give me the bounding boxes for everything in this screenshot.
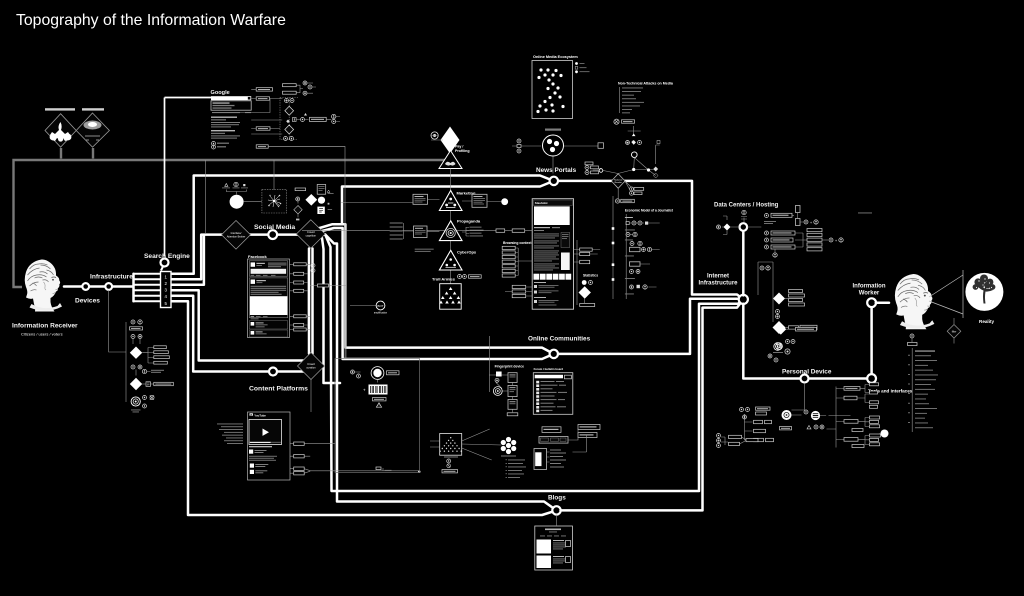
svg-text:Forum / bulletin board: Forum / bulletin board [534, 367, 564, 371]
svg-text:Fingerprint device: Fingerprint device [495, 365, 525, 369]
svg-text:+: + [835, 239, 837, 243]
svg-text:Information: Information [853, 284, 886, 290]
svg-text:Propaganda: Propaganda [457, 219, 481, 224]
svg-text:Pig: Pig [448, 136, 452, 140]
svg-text:Infrastructure: Infrastructure [698, 281, 738, 287]
svg-text:Infrastructure: Infrastructure [90, 274, 133, 281]
svg-text:web: web [134, 352, 139, 355]
svg-text:YouTube: YouTube [254, 413, 266, 417]
svg-text:Non-Technical Attacks on Media: Non-Technical Attacks on Media [618, 82, 674, 86]
svg-text:Information Receiver: Information Receiver [12, 323, 78, 330]
svg-text:Blogs: Blogs [548, 495, 566, 502]
svg-text:Internet: Internet [707, 274, 729, 280]
svg-text:Slashdot: Slashdot [535, 201, 548, 205]
svg-text:Pay /: Pay / [455, 145, 463, 149]
svg-text:Content Platforms: Content Platforms [249, 386, 308, 393]
svg-text:Reality: Reality [979, 319, 995, 324]
svg-text:+: + [363, 388, 366, 393]
svg-text:amplification: amplification [374, 312, 388, 315]
svg-text:Algorithm: Algorithm [231, 200, 242, 204]
svg-text:Worker: Worker [859, 291, 880, 297]
svg-text:Attention Broker: Attention Broker [227, 234, 246, 238]
svg-text:cognition: cognition [306, 234, 317, 238]
svg-text:Topography of the Information: Topography of the Information Warfare [16, 12, 286, 29]
svg-text:Economic Model of a Journalist: Economic Model of a Journalist [625, 209, 674, 213]
svg-text:Google: Google [211, 90, 230, 96]
svg-text:Devices: Devices [75, 298, 100, 305]
svg-text:Statistics: Statistics [583, 274, 598, 278]
svg-text:filter: filter [952, 330, 957, 333]
svg-text:Reader: Reader [615, 181, 622, 184]
svg-text:Interface/: Interface/ [231, 231, 242, 235]
svg-text:Data Centers / Hosting: Data Centers / Hosting [714, 203, 779, 209]
svg-text:BOT: BOT [377, 304, 383, 308]
svg-text:News Portals: News Portals [536, 167, 577, 174]
svg-text:Online Media Ecosystem: Online Media Ecosystem [533, 55, 578, 59]
svg-text:AI: AI [376, 372, 380, 376]
svg-text:Browsing context: Browsing context [503, 241, 532, 245]
svg-text:Facebook: Facebook [248, 254, 267, 259]
svg-text:Online Communities: Online Communities [528, 336, 591, 343]
svg-text:National: National [614, 178, 623, 181]
svg-text:+: + [810, 221, 812, 225]
svg-text:curation: curation [306, 366, 316, 370]
svg-text:Search Engine: Search Engine [144, 253, 190, 260]
svg-text:app: app [134, 383, 139, 386]
svg-text:data: data [447, 140, 453, 144]
svg-text:CyberOps: CyberOps [457, 250, 477, 255]
svg-text:Citizens / users / voters: Citizens / users / voters [21, 332, 63, 337]
svg-text:Personal Device: Personal Device [782, 369, 832, 376]
svg-text:Crowd: Crowd [307, 362, 315, 366]
svg-text:Troll Armies: Troll Armies [432, 277, 456, 282]
svg-text:Profiling: Profiling [455, 149, 470, 153]
